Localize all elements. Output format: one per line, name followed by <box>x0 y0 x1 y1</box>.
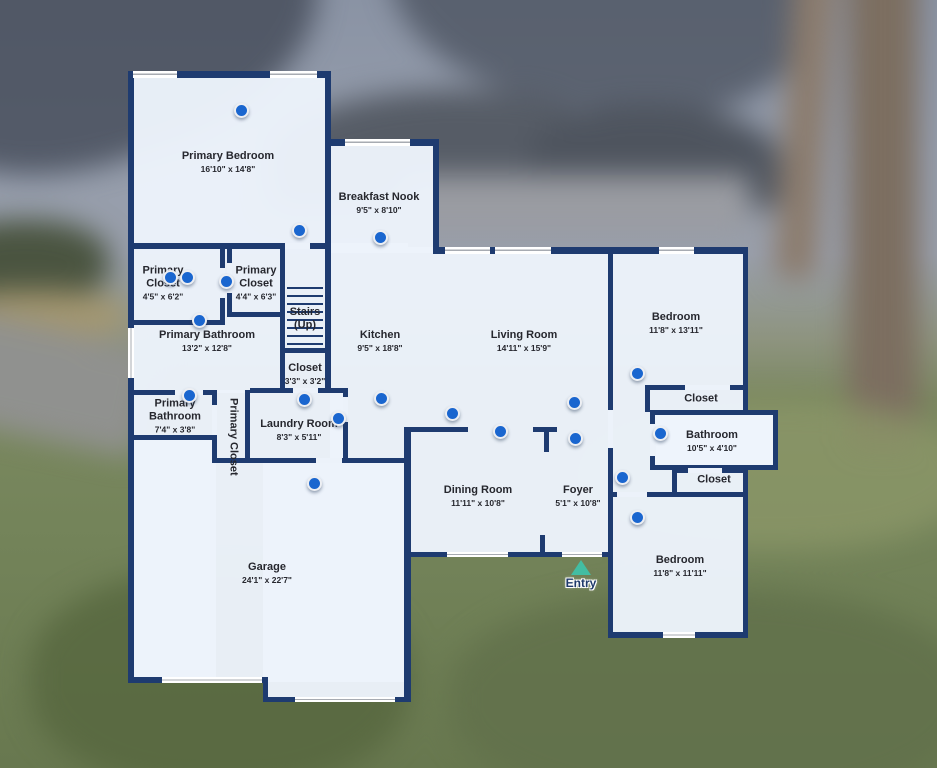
room-label-closet-stairs: Closet 3'3" x 3'2" <box>285 362 325 386</box>
room-label-closet-bottom-right: Closet <box>697 474 731 487</box>
panorama-point[interactable] <box>292 223 307 238</box>
window <box>128 328 134 378</box>
panorama-point[interactable] <box>182 388 197 403</box>
room-label-dining-room: Dining Room 11'11" x 10'8" <box>444 484 512 508</box>
wall <box>544 432 549 452</box>
panorama-point[interactable] <box>445 406 460 421</box>
panorama-point[interactable] <box>180 270 195 285</box>
floor-plan-viewer: Primary Bedroom 16'10" x 14'8" Breakfast… <box>0 0 937 768</box>
wall <box>433 139 439 254</box>
panorama-point[interactable] <box>297 392 312 407</box>
window <box>270 71 317 78</box>
panorama-point[interactable] <box>653 426 668 441</box>
wall <box>128 320 225 325</box>
entry-label: Entry <box>566 576 597 590</box>
room-label-bathroom-right: Bathroom 10'5" x 4'10" <box>686 429 738 453</box>
panorama-point[interactable] <box>568 431 583 446</box>
house-body <box>400 175 750 235</box>
panorama-point[interactable] <box>234 103 249 118</box>
wall <box>645 385 650 412</box>
panorama-point[interactable] <box>373 230 388 245</box>
window <box>345 139 410 146</box>
panorama-point[interactable] <box>219 274 234 289</box>
room-label-bedroom-top-right: Bedroom 11'8" x 13'11" <box>649 311 703 335</box>
room-label-stairs: Stairs (Up) <box>290 306 321 332</box>
room-label-primary-closet-vertical: Primary Closet <box>227 398 240 458</box>
wall <box>404 427 468 432</box>
window <box>659 247 694 254</box>
panorama-point[interactable] <box>630 366 645 381</box>
room-label-primary-closet-mid: Primary Closet 4'4" x 6'3" <box>225 265 287 302</box>
door-opening <box>316 458 342 463</box>
room-label-living-room: Living Room 14'11" x 15'9" <box>491 329 558 353</box>
wall <box>540 535 545 552</box>
room-label-primary-bedroom: Primary Bedroom 16'10" x 14'8" <box>182 150 274 174</box>
wall <box>232 312 280 317</box>
room-label-laundry-room: Laundry Room 8'3" x 5'11" <box>260 418 338 442</box>
door-opening <box>617 492 647 497</box>
panorama-point[interactable] <box>331 411 346 426</box>
panorama-point[interactable] <box>307 476 322 491</box>
window <box>663 632 695 638</box>
window <box>495 247 551 254</box>
door-opening <box>685 385 730 390</box>
wall <box>404 427 411 702</box>
room-label-primary-bathroom: Primary Bathroom 13'2" x 12'8" <box>159 329 255 353</box>
panorama-point[interactable] <box>630 510 645 525</box>
wall <box>325 71 331 393</box>
window <box>133 71 177 78</box>
panorama-point[interactable] <box>567 395 582 410</box>
room-label-breakfast-nook: Breakfast Nook 9'5" x 8'10" <box>339 191 420 215</box>
window <box>447 552 508 557</box>
room-label-closet-top-right: Closet <box>684 393 718 406</box>
panorama-point[interactable] <box>493 424 508 439</box>
panorama-point[interactable] <box>192 313 207 328</box>
panorama-point[interactable] <box>374 391 389 406</box>
panorama-point[interactable] <box>615 470 630 485</box>
room-label-bedroom-bottom-right: Bedroom 11'8" x 11'11" <box>653 554 706 578</box>
door-opening <box>285 243 310 249</box>
entry-direction-icon <box>571 560 591 575</box>
floor-living-dining-foyer <box>408 247 613 557</box>
wall <box>212 458 411 463</box>
panorama-point[interactable] <box>163 270 178 285</box>
room-label-kitchen: Kitchen 9'5" x 18'8" <box>357 329 402 353</box>
tree-trunk-right-2 <box>848 0 918 450</box>
garage-door <box>162 677 262 683</box>
entry-door-opening <box>562 552 602 557</box>
wall <box>128 435 217 440</box>
door-opening <box>688 468 722 473</box>
window <box>445 247 490 254</box>
room-label-primary-bathroom-small: Primary Bathroom 7'4" x 3'8" <box>132 398 218 435</box>
garage-door <box>295 697 395 702</box>
room-label-garage: Garage 24'1" x 22'7" <box>242 561 292 585</box>
floor-kitchen-strip <box>330 243 408 463</box>
room-label-foyer: Foyer 5'1" x 10'8" <box>555 484 600 508</box>
wall <box>245 390 250 463</box>
door-opening <box>608 410 613 448</box>
